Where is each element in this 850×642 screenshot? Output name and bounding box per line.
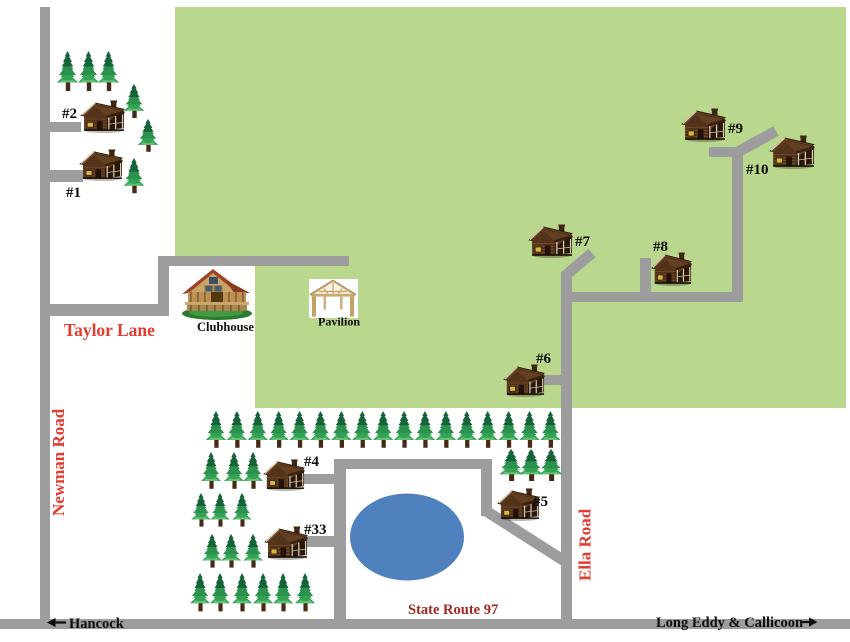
svg-text:Long Eddy & Callicoon: Long Eddy & Callicoon — [656, 615, 803, 631]
svg-text:#2: #2 — [62, 106, 77, 122]
svg-text:Newman Road: Newman Road — [49, 408, 68, 516]
svg-text:Ella Road: Ella Road — [576, 508, 595, 581]
svg-text:#33: #33 — [304, 522, 327, 538]
svg-text:#9: #9 — [728, 121, 743, 137]
svg-text:Clubhouse: Clubhouse — [197, 320, 254, 334]
svg-text:#1: #1 — [66, 185, 81, 201]
svg-text:Pavilion: Pavilion — [318, 315, 360, 329]
svg-text:#5: #5 — [533, 494, 548, 510]
svg-text:State Route 97: State Route 97 — [408, 602, 498, 618]
svg-text:#7: #7 — [575, 234, 591, 250]
svg-text:#8: #8 — [653, 239, 668, 255]
svg-text:#6: #6 — [536, 351, 552, 367]
svg-text:Hancock: Hancock — [69, 616, 125, 632]
svg-text:#4: #4 — [304, 454, 320, 470]
svg-text:Taylor Lane: Taylor Lane — [64, 320, 155, 340]
svg-text:#10: #10 — [746, 162, 769, 178]
